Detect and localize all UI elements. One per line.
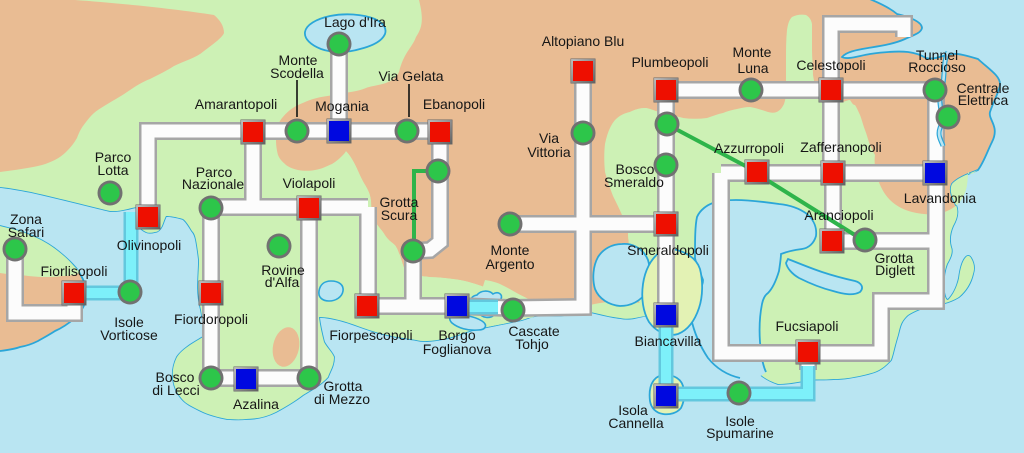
svg-text:Smeraldopoli: Smeraldopoli xyxy=(627,242,709,258)
svg-text:Scura: Scura xyxy=(381,207,418,223)
svg-text:Ebanopoli: Ebanopoli xyxy=(423,96,485,112)
svg-text:Smeraldo: Smeraldo xyxy=(604,174,664,190)
svg-text:d'Alfa: d'Alfa xyxy=(265,274,300,290)
svg-text:Argento: Argento xyxy=(485,256,534,272)
svg-text:Scodella: Scodella xyxy=(270,65,324,81)
svg-text:Safari: Safari xyxy=(8,224,45,240)
svg-text:Diglett: Diglett xyxy=(875,262,915,278)
svg-text:di Mezzo: di Mezzo xyxy=(314,391,370,407)
svg-text:Vittoria: Vittoria xyxy=(527,144,571,160)
svg-text:Aranciopoli: Aranciopoli xyxy=(804,207,873,223)
svg-text:Monte: Monte xyxy=(733,44,772,60)
svg-text:Fiordoropoli: Fiordoropoli xyxy=(174,311,248,327)
svg-text:Via Gelata: Via Gelata xyxy=(378,68,443,84)
svg-text:Lavandonia: Lavandonia xyxy=(904,190,977,206)
svg-text:Elettrica: Elettrica xyxy=(958,92,1009,108)
svg-text:Cannella: Cannella xyxy=(608,415,663,431)
svg-text:Fiorpescopoli: Fiorpescopoli xyxy=(329,327,412,343)
svg-text:Spumarine: Spumarine xyxy=(706,425,774,441)
svg-text:Fucsiapoli: Fucsiapoli xyxy=(775,318,838,334)
svg-text:Luna: Luna xyxy=(737,60,768,76)
svg-text:Fiorlisopoli: Fiorlisopoli xyxy=(41,263,108,279)
svg-text:Foglianova: Foglianova xyxy=(423,341,492,357)
svg-text:Azalina: Azalina xyxy=(233,396,279,412)
svg-text:Vorticose: Vorticose xyxy=(100,327,158,343)
svg-text:Olivinopoli: Olivinopoli xyxy=(117,237,182,253)
svg-text:Mogania: Mogania xyxy=(315,98,369,114)
svg-text:Tohjo: Tohjo xyxy=(515,336,549,352)
svg-text:Violapoli: Violapoli xyxy=(283,175,336,191)
svg-text:Altopiano Blu: Altopiano Blu xyxy=(542,33,625,49)
svg-text:Nazionale: Nazionale xyxy=(182,176,244,192)
svg-text:Plumbeopoli: Plumbeopoli xyxy=(631,54,708,70)
svg-text:Lotta: Lotta xyxy=(97,162,128,178)
svg-text:Zafferanopoli: Zafferanopoli xyxy=(800,139,881,155)
svg-text:Azzurropoli: Azzurropoli xyxy=(714,140,784,156)
svg-text:Lago d'Ira: Lago d'Ira xyxy=(324,14,386,30)
svg-text:Celestopoli: Celestopoli xyxy=(796,57,865,73)
svg-text:Amarantopoli: Amarantopoli xyxy=(195,96,278,112)
svg-text:di Lecci: di Lecci xyxy=(152,382,199,398)
svg-text:Biancavilla: Biancavilla xyxy=(635,333,702,349)
svg-text:Roccioso: Roccioso xyxy=(908,59,966,75)
